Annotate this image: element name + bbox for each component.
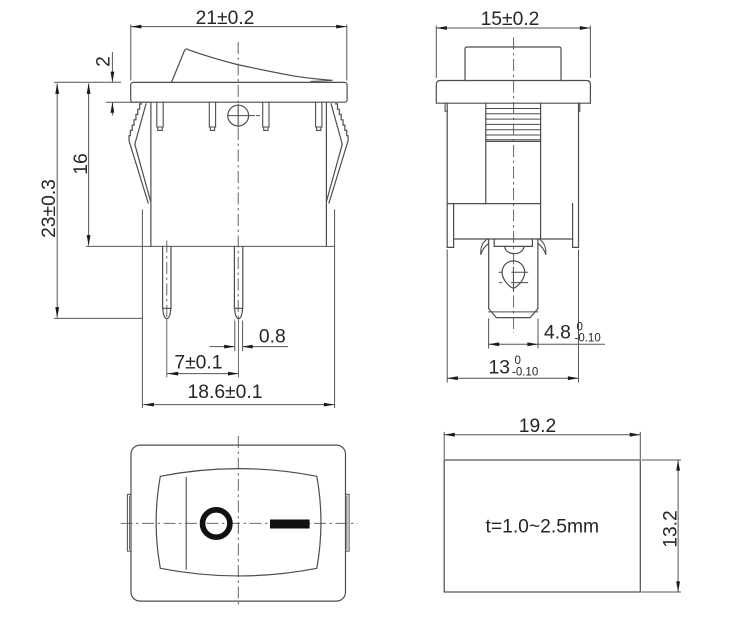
svg-text:0: 0 xyxy=(515,355,521,367)
svg-text:13.2: 13.2 xyxy=(661,510,682,548)
svg-text:2: 2 xyxy=(93,56,114,67)
svg-text:18.6±0.1: 18.6±0.1 xyxy=(188,382,263,403)
svg-text:7±0.1: 7±0.1 xyxy=(174,353,222,374)
svg-text:0.8: 0.8 xyxy=(259,326,286,347)
svg-text:4.8: 4.8 xyxy=(544,322,571,343)
svg-text:15±0.2: 15±0.2 xyxy=(481,9,540,30)
svg-text:13: 13 xyxy=(489,358,510,379)
svg-text:19.2: 19.2 xyxy=(519,416,557,437)
svg-text:23±0.3: 23±0.3 xyxy=(39,179,60,238)
svg-text:16: 16 xyxy=(71,153,92,174)
svg-text:t=1.0~2.5mm: t=1.0~2.5mm xyxy=(485,517,599,538)
svg-text:-0.10: -0.10 xyxy=(575,333,601,345)
svg-text:-0.10: -0.10 xyxy=(512,367,538,379)
svg-text:21±0.2: 21±0.2 xyxy=(196,8,255,29)
